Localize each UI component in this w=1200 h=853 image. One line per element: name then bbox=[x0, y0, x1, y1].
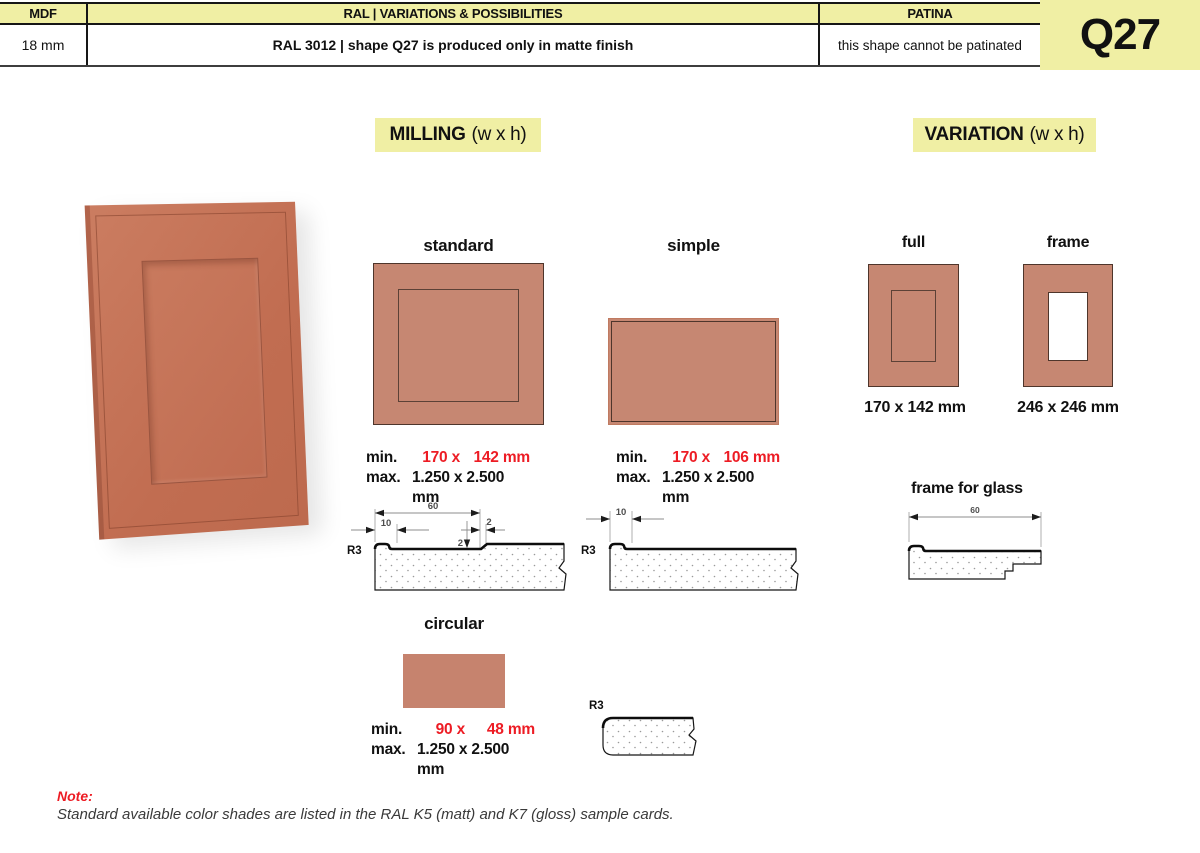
standard-inner-frame-line bbox=[398, 289, 519, 402]
full-inner-frame-line bbox=[891, 290, 936, 362]
circular-milling-profile-drawing: R3 bbox=[583, 696, 703, 764]
standard-min-width: 170 x bbox=[412, 448, 460, 468]
variation-title-text: VARIATION bbox=[925, 124, 1024, 146]
spec-table-header-row: MDF RAL | VARIATIONS & POSSIBILITIES PAT… bbox=[0, 2, 1040, 25]
milling-title-suffix: (w x h) bbox=[472, 124, 527, 146]
circular-max-value: 1.250 x 2.500 mm bbox=[417, 740, 535, 780]
standard-label: standard bbox=[373, 236, 544, 256]
spec-table-value-row: 18 mm RAL 3012 | shape Q27 is produced o… bbox=[0, 25, 1040, 67]
circular-max-label: max. bbox=[371, 740, 405, 780]
full-size: 170 x 142 mm bbox=[854, 399, 976, 417]
shape-code-badge: Q27 bbox=[1040, 0, 1200, 70]
patina-column-header: PATINA bbox=[907, 6, 952, 21]
full-label: full bbox=[868, 234, 959, 252]
frame-window-cutout bbox=[1048, 292, 1088, 361]
standard-dim-step-depth-label: 2 bbox=[458, 538, 463, 549]
circular-label: circular bbox=[403, 614, 505, 634]
shape-code: Q27 bbox=[1080, 10, 1160, 60]
simple-edge-line bbox=[611, 321, 776, 422]
circular-min-height: 48 mm bbox=[477, 720, 535, 740]
milling-title-text: MILLING bbox=[390, 124, 466, 146]
door-center-panel bbox=[141, 258, 268, 485]
simple-panel-diagram bbox=[608, 318, 779, 425]
frame-for-glass-dim-60-label: 60 bbox=[970, 505, 980, 515]
standard-min-label: min. bbox=[366, 448, 400, 468]
door-panel-front bbox=[85, 202, 309, 540]
standard-panel-diagram bbox=[373, 263, 544, 425]
variation-section-title: VARIATION (w x h) bbox=[913, 118, 1096, 152]
simple-dim-10-label: 10 bbox=[616, 507, 627, 518]
simple-label: simple bbox=[608, 236, 779, 256]
circular-panel-diagram bbox=[403, 654, 505, 708]
frame-label: frame bbox=[1023, 234, 1113, 252]
circular-dimensions: min. 90 x 48 mm max. 1.250 x 2.500 mm bbox=[368, 720, 538, 780]
frame-for-glass-label: frame for glass bbox=[887, 480, 1047, 498]
simple-min-width: 170 x bbox=[662, 448, 710, 468]
simple-min-height: 106 mm bbox=[722, 448, 780, 468]
variation-title-suffix: (w x h) bbox=[1030, 124, 1085, 146]
note-label: Note: bbox=[57, 788, 93, 804]
circular-radius-label: R3 bbox=[589, 700, 604, 712]
mdf-column-header: MDF bbox=[29, 6, 57, 21]
circular-min-width: 90 x bbox=[417, 720, 465, 740]
door-panel-render bbox=[92, 204, 306, 534]
ral-column-header: RAL | VARIATIONS & POSSIBILITIES bbox=[344, 6, 563, 21]
catalog-page: MDF RAL | VARIATIONS & POSSIBILITIES PAT… bbox=[0, 0, 1200, 853]
simple-radius-label: R3 bbox=[581, 545, 596, 557]
full-variation-diagram bbox=[868, 264, 959, 387]
standard-milling-profile-drawing: 60 10 2 2 R3 bbox=[345, 497, 577, 599]
standard-min-height: 142 mm bbox=[472, 448, 530, 468]
standard-radius-label: R3 bbox=[347, 545, 362, 557]
simple-min-label: min. bbox=[616, 448, 650, 468]
spec-table: MDF RAL | VARIATIONS & POSSIBILITIES PAT… bbox=[0, 2, 1040, 67]
note-text: Standard available color shades are list… bbox=[57, 806, 674, 823]
mdf-thickness-value: 18 mm bbox=[22, 37, 65, 53]
patina-value: this shape cannot be patinated bbox=[838, 38, 1022, 53]
circular-min-label: min. bbox=[371, 720, 405, 740]
frame-size: 246 x 246 mm bbox=[1007, 399, 1129, 417]
frame-variation-diagram bbox=[1023, 264, 1113, 387]
ral-finish-value: RAL 3012 | shape Q27 is produced only in… bbox=[273, 37, 634, 53]
simple-milling-profile-drawing: 10 R3 bbox=[580, 497, 805, 599]
standard-dim-step-width-label: 2 bbox=[486, 517, 491, 528]
standard-dim-60-label: 60 bbox=[428, 501, 439, 512]
milling-section-title: MILLING (w x h) bbox=[375, 118, 541, 152]
frame-for-glass-profile-drawing: 60 bbox=[895, 500, 1055, 595]
standard-dim-10-label: 10 bbox=[381, 518, 392, 529]
